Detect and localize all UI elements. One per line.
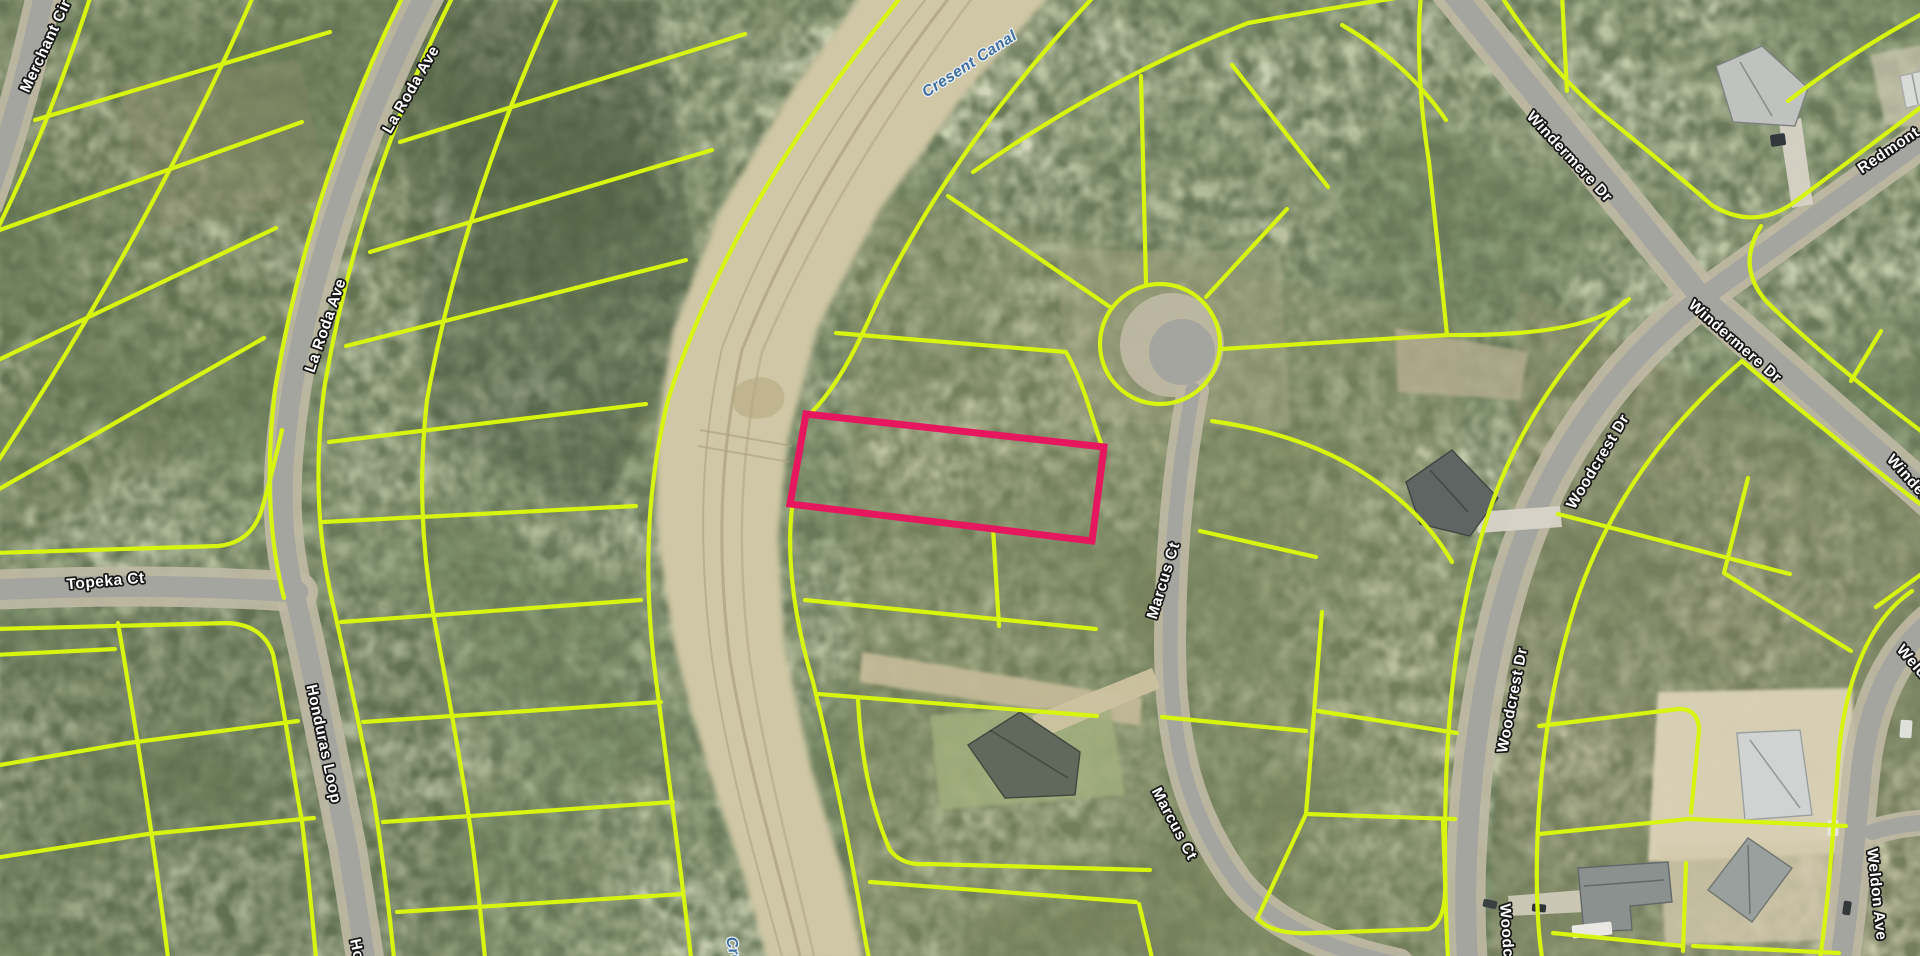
- forest-bottom-left: [0, 600, 480, 956]
- road-weldon-ave-spur: [1872, 822, 1920, 832]
- truck-weldon-east: [1899, 720, 1912, 739]
- car-house1-drive: [1770, 133, 1787, 147]
- culdesac-pavement: [1149, 319, 1215, 385]
- road-topeka-ct: [0, 587, 298, 593]
- parcel-line-63: [1683, 863, 1686, 951]
- house-construction: [1737, 730, 1812, 820]
- aerial-map-view[interactable]: Merchant CirLa Roda AveLa Roda AveTopeka…: [0, 0, 1920, 956]
- map-canvas[interactable]: Merchant CirLa Roda AveLa Roda AveTopeka…: [0, 0, 1920, 956]
